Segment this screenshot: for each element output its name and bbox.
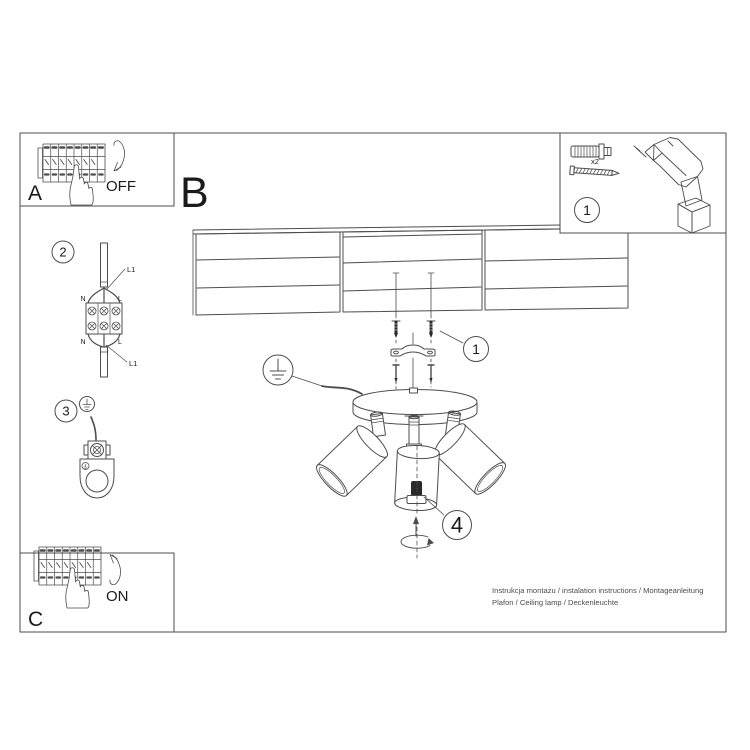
mounting-ring [80, 459, 114, 498]
bulb-callout-number: 4 [451, 513, 463, 538]
arrow-up-icon [110, 555, 121, 585]
step3-number: 3 [62, 404, 69, 419]
tools-box [560, 133, 726, 233]
terminal-l-bottom: L [118, 339, 122, 346]
screw-upper-right [427, 321, 435, 338]
ground-symbol-small [80, 397, 95, 412]
off-label: OFF [106, 178, 136, 195]
ground-leader-line [292, 376, 322, 386]
mounting-bracket [391, 345, 435, 356]
power-wire [322, 386, 362, 394]
arrow-down-icon [114, 141, 125, 171]
terminal-l-top: L [118, 296, 122, 303]
terminal-n-top: N [80, 296, 85, 303]
panel-b-label: B [180, 169, 209, 217]
rotate-arrow-icon [401, 516, 434, 548]
screw-lower-right [428, 365, 434, 383]
plug-quantity-label: x2 [591, 157, 599, 166]
screw-lower-left [393, 365, 399, 383]
panel-a-label: A [28, 182, 42, 205]
wire-l1-top: L1 [127, 265, 135, 274]
screws-callout-number: 1 [472, 341, 480, 357]
breaker-off-illustration [38, 141, 125, 205]
on-label: ON [106, 588, 129, 605]
ceiling-boards [193, 224, 633, 315]
earth-terminal [84, 441, 110, 459]
instruction-artwork: A OFF B C ON 1 x2 2 N L N L L1 L1 3 1 4 … [0, 0, 750, 750]
spotlight-right [431, 420, 510, 498]
instruction-sheet: A OFF B C ON 1 x2 2 N L N L L1 L1 3 1 4 … [0, 0, 750, 750]
footer-title-line: Instrukcja montażu / instalation instruc… [492, 586, 703, 595]
panel-c-label: C [28, 608, 43, 631]
tools-step-number: 1 [583, 202, 591, 218]
terminal-n-bottom: N [80, 339, 85, 346]
screw-upper-left [392, 321, 400, 338]
step2-number: 2 [59, 245, 66, 260]
ground-symbol [263, 355, 293, 385]
wire-l1-bottom: L1 [129, 359, 137, 368]
footer-product-line: Plafon / Ceiling lamp / Deckenleuchte [492, 598, 618, 607]
mounting-screws [391, 273, 489, 390]
wiring-diagram [52, 241, 127, 377]
